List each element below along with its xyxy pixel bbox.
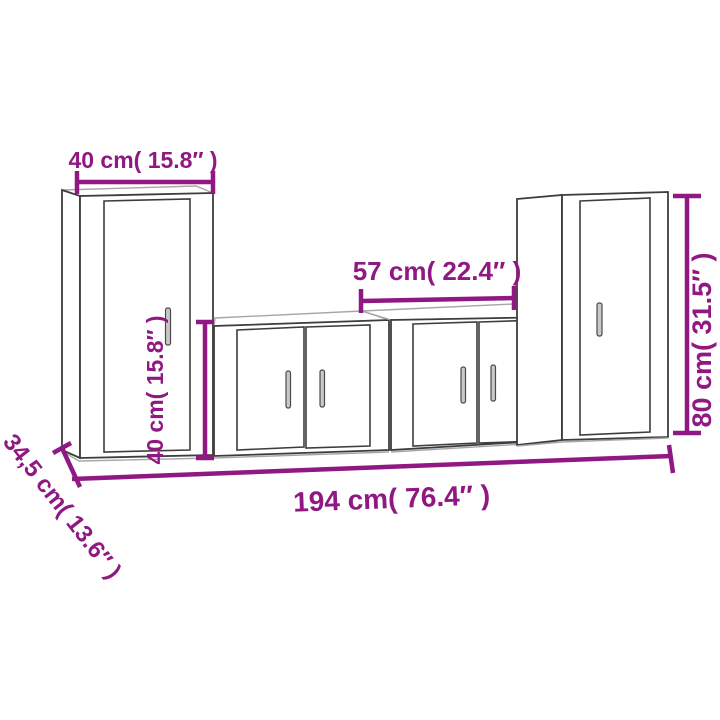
dimension-label: 194 cm( 76.4″ ) [293,479,491,518]
dimension-label: 80 cm( 31.5″ ) [687,252,717,427]
door-handle [597,303,602,336]
diagram-canvas: 40 cm( 15.8″ ) 40 cm( 15.8″ ) 57 cm( 22.… [0,0,720,720]
cabinet-door-left [413,322,477,446]
low-cabinet-1 [214,311,389,458]
dimension-tick [669,445,673,473]
door-handle [461,367,466,403]
door-handle [491,365,496,401]
dimension-line [361,298,514,301]
cabinet-side-panel [62,190,80,458]
cabinet-door [580,198,650,435]
product-dimension-diagram: 40 cm( 15.8″ ) 40 cm( 15.8″ ) 57 cm( 22.… [0,0,720,720]
dimension-label: 40 cm( 15.8″ ) [142,315,168,464]
door-handle [286,371,291,408]
dimension-label: 40 cm( 15.8″ ) [68,147,217,173]
cabinet-door-right [306,325,370,448]
dimension-label: 57 cm( 22.4″ ) [353,256,522,286]
cabinet-door-left [237,327,304,450]
cabinet-side-panel [517,195,562,445]
tall-cabinet-right [517,192,668,446]
dimension-tall-cabinet-height: 80 cm( 31.5″ ) [673,196,717,433]
door-handle [320,370,325,407]
tall-cabinet-left [62,186,213,461]
